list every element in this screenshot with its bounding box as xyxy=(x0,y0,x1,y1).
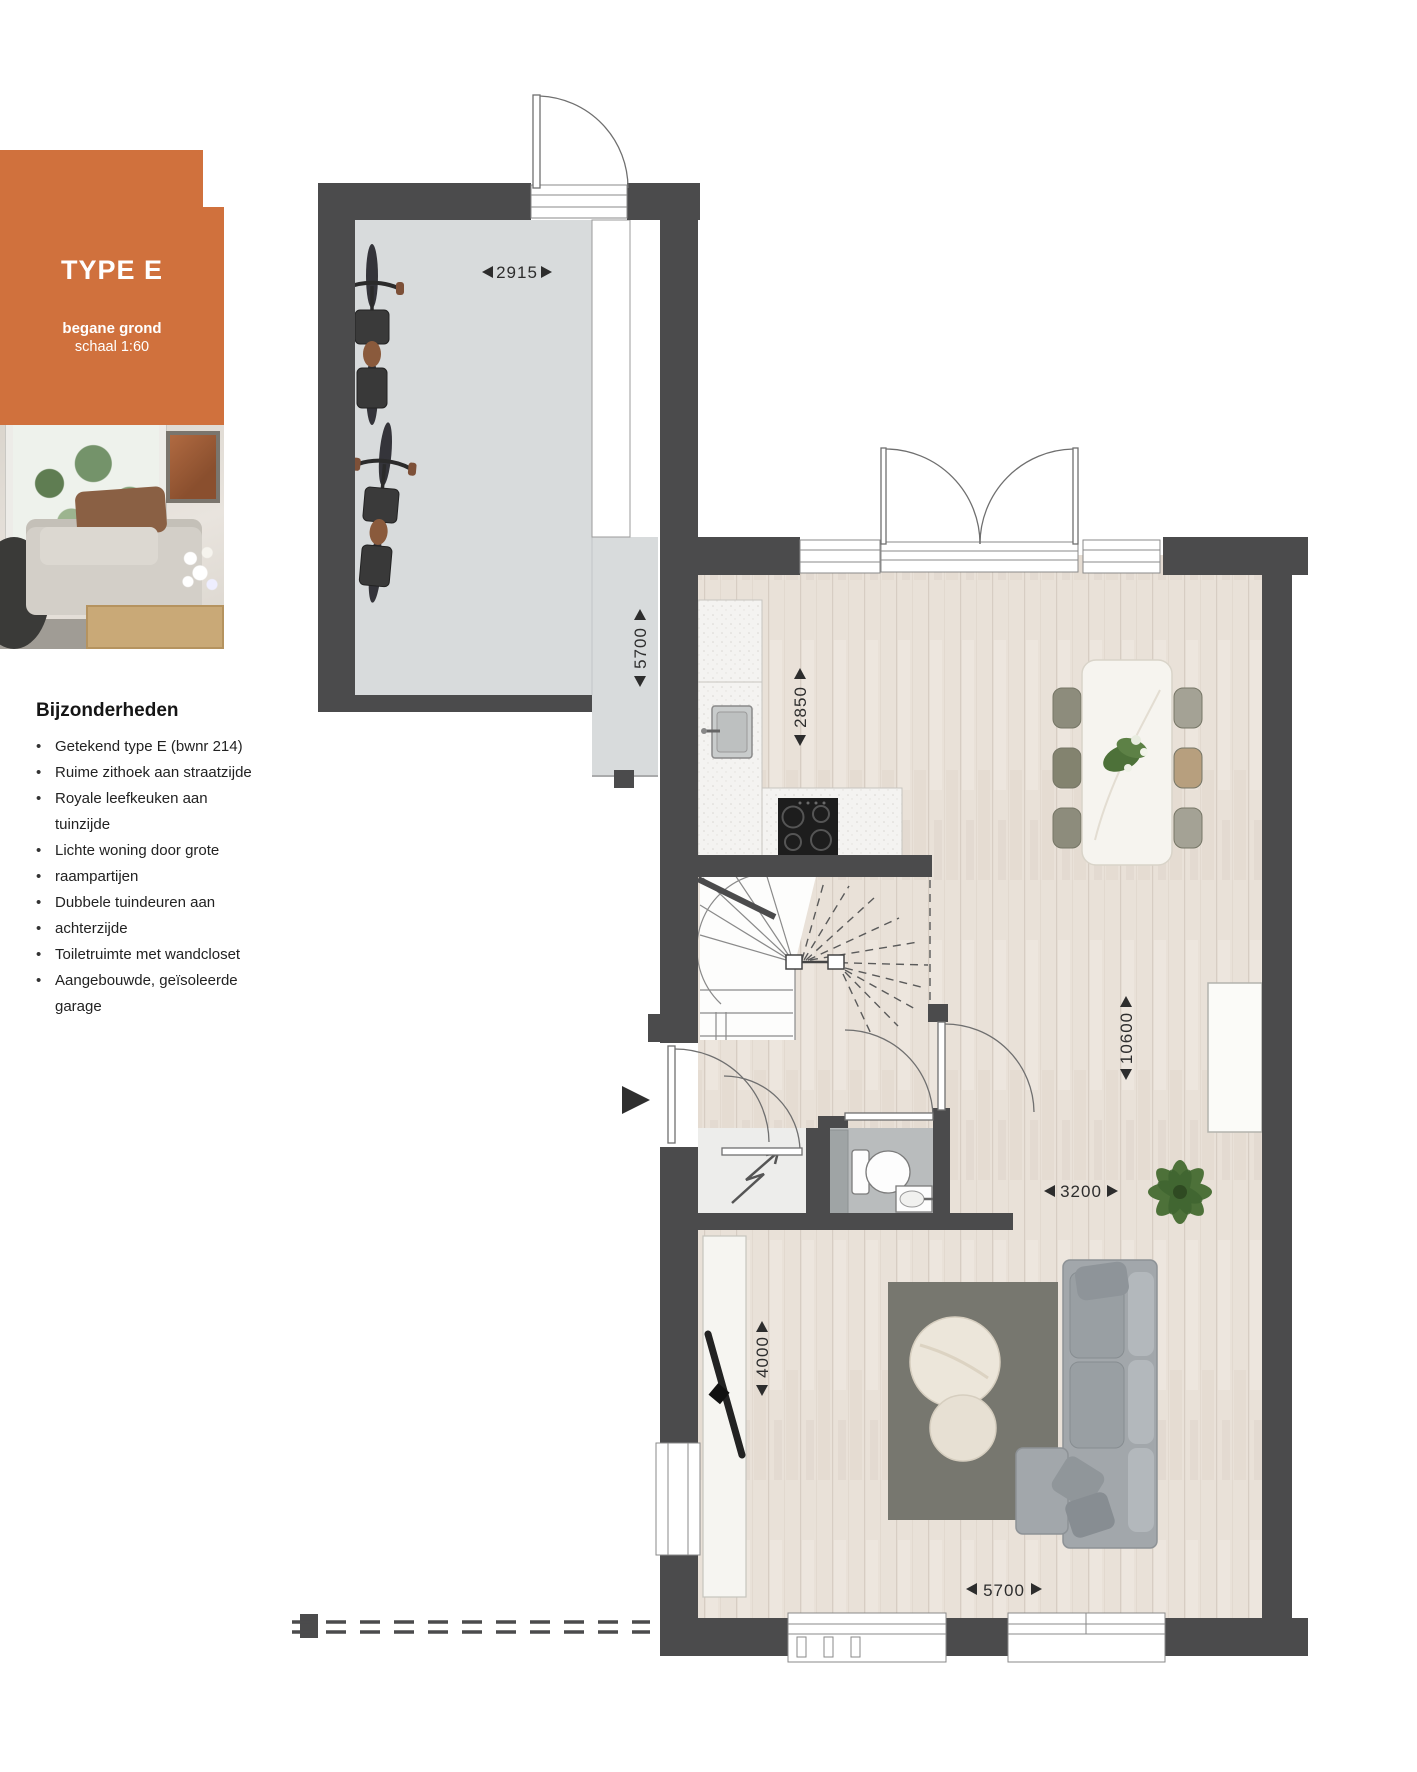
svg-text:5700: 5700 xyxy=(631,627,650,669)
plant xyxy=(1148,1160,1212,1224)
property-line xyxy=(292,1622,650,1632)
brochure-page: { "header": { "type_label": "TYPE E", "f… xyxy=(0,0,1417,1772)
svg-text:2915: 2915 xyxy=(496,263,538,282)
meter-closet-floor xyxy=(698,1128,806,1216)
svg-text:2850: 2850 xyxy=(791,686,810,728)
cooktop xyxy=(778,798,838,855)
toilet-room xyxy=(822,1128,936,1216)
svg-text:10600: 10600 xyxy=(1117,1012,1136,1064)
svg-text:3200: 3200 xyxy=(1060,1182,1102,1201)
svg-text:5700: 5700 xyxy=(983,1581,1025,1600)
sideboard xyxy=(1208,983,1262,1132)
tv-cabinet xyxy=(703,1236,746,1597)
floor-plan: 2915 5700 2850 10600 3200 4000 xyxy=(0,0,1417,1772)
entry-arrow xyxy=(622,1086,650,1114)
dining-set xyxy=(1053,660,1202,865)
garage-cavity-wall xyxy=(592,220,630,537)
svg-text:4000: 4000 xyxy=(753,1336,772,1378)
